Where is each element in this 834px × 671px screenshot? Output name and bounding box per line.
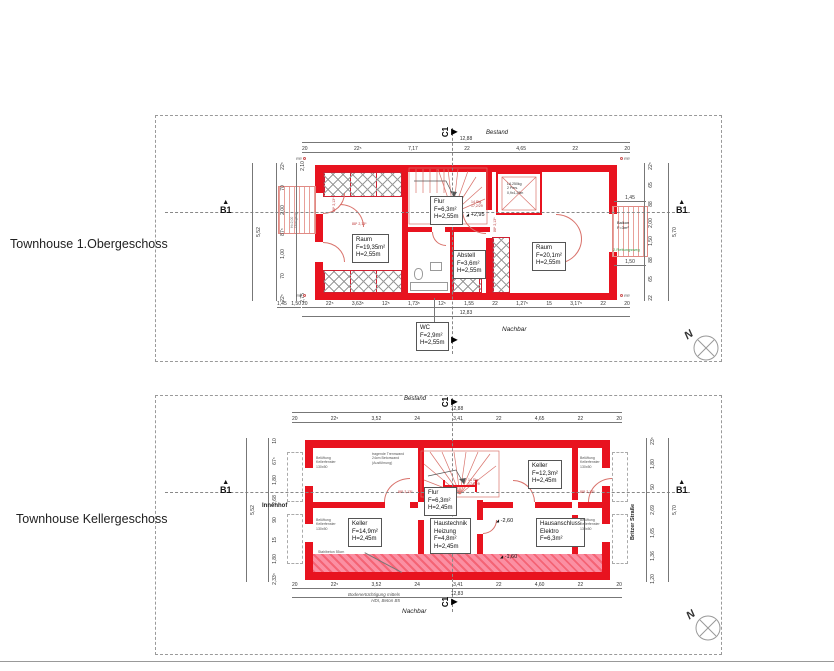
plan1-b1-marker-right: ▲B1 — [676, 199, 688, 215]
plan1-wall-left-seg — [315, 214, 323, 242]
plan2-dim-top-row: 2022⁵3,52243,41224,652220 — [292, 416, 622, 423]
dim-value: 12⁵ — [438, 301, 446, 307]
plan2-wall-mid-right — [535, 502, 572, 508]
room-name: Keller — [352, 521, 378, 529]
plan1-wall-left-seg — [315, 262, 323, 300]
plan1-rr-marker: RR — [620, 293, 630, 298]
level-value: -2,60 — [501, 518, 514, 524]
plan2-light-well — [287, 514, 303, 564]
plan2-room-label-flur: FlurF=6,3m²H=2,45m — [424, 487, 457, 516]
section-label: B1 — [220, 486, 232, 495]
plan2-vent-label: BelüftungKellerfenster130x50 — [316, 518, 336, 531]
room-name: Raum — [536, 245, 562, 253]
plan1-section-line-c1 — [452, 128, 453, 354]
plan2-dim-left-total: 5,52 — [246, 438, 258, 582]
dim-value: 20 — [624, 146, 630, 152]
plan2-bestand-label: Bestand — [404, 396, 426, 402]
room-area: F=6,3m² — [428, 498, 453, 506]
plan2-wall-top — [305, 440, 610, 448]
plan2-wall-mid-right — [578, 502, 602, 508]
plan2-b1-marker-left: ▲B1 — [220, 479, 232, 495]
dim-value: 5,70 — [671, 505, 677, 515]
dim-value: 1,00 — [279, 249, 285, 259]
rr-label: RR — [624, 293, 630, 298]
plan2-light-well — [612, 514, 628, 564]
section-flag-icon: ▶ — [451, 128, 457, 136]
room-area: F=19,35m² — [356, 245, 385, 253]
plan1-room-label-abstell: AbstellF=3,6m²H=2,55m — [453, 250, 486, 279]
note-line: (Ausführung) — [372, 461, 404, 465]
dim-value: 1,20 — [649, 574, 655, 584]
plan2-wall-right-seg — [602, 542, 610, 580]
dim-value: 22⁵ — [279, 294, 285, 302]
dim-value: 3,41 — [453, 582, 463, 588]
rr-label: RR — [624, 156, 630, 161]
plan1-c1-marker-top: C1▶ — [441, 128, 457, 136]
plan1-dim-right-total: 5,70 — [668, 163, 680, 301]
dim-value: 4,65 — [535, 416, 545, 422]
plan2-door-tag: 88⁵ 2,13⁵ — [398, 490, 413, 494]
dim-value: 20 — [292, 582, 298, 588]
room-name: Haustechnik — [434, 521, 467, 529]
dim-value: 12⁵ — [382, 301, 390, 307]
plan2-boden-note: Bodenertüchtigung mittelsHDI, Beton B5 — [300, 592, 400, 603]
note-line: HDI, Beton B5 — [300, 598, 400, 604]
room-area: F=6,3m² — [434, 207, 459, 215]
dim-value: 4,65 — [516, 146, 526, 152]
room-area: F=3m² — [617, 225, 629, 230]
plan2-stahlbeton-note: Stahlbeton 55cm — [318, 550, 344, 554]
dim-value: 4,60 — [535, 582, 545, 588]
room-height: H=2,45m — [352, 536, 378, 544]
plan1-wall-bottom — [315, 293, 617, 300]
room-height: H=2,55m — [356, 252, 385, 260]
vent-line: 130x50 — [580, 465, 600, 469]
plan2-c1-marker-bottom: C1▶ — [441, 598, 457, 606]
plan2-dim-right-col: 23⁵1,80502,691,651,361,20 — [646, 438, 658, 582]
plan2-wall-left-seg — [305, 542, 313, 580]
elevator-text-line: 0,9x1,25m — [507, 191, 523, 195]
rr-dot-icon — [303, 157, 306, 160]
plan1-masonry-hatch-bottom — [323, 270, 402, 293]
plan2-wall-mid-left — [313, 502, 385, 508]
dim-value: 22 — [496, 582, 502, 588]
plan2-vent-label: BelüftungKellerfenster130x50 — [316, 456, 336, 469]
plan1-elevator-shaft: LA 250kg2 Pers.0,9x1,25m — [496, 172, 542, 215]
dim-value: 3,63⁵ — [352, 301, 364, 307]
dim-value: 2,00 — [647, 218, 653, 228]
plan1-dim-left-inner: 2,102,75 — [296, 163, 308, 301]
plan1-room-label-raum-left: RaumF=19,35m²H=2,55m — [352, 234, 389, 263]
room-height: H=2,45m — [428, 505, 453, 513]
dim-value: 22 — [578, 582, 584, 588]
level-flag-icon: ◢ — [466, 212, 469, 217]
plan1-door-tag: 88⁵ 2,13⁵ — [332, 197, 336, 212]
plan1-wc-fixture — [414, 268, 423, 280]
dim-value: 22⁵ — [331, 582, 339, 588]
plan1-door-tag: 88⁵ 2,13⁵ — [352, 222, 367, 226]
plan2-dim-left-col: 1067⁵1,802,6890151,802,33⁵ — [268, 438, 280, 582]
plan2-room-label-keller-left: KellerF=14,9m²H=2,45m — [348, 518, 382, 547]
plan2-trennwand-note: tragende Trennwand24cm Betonwand(Ausführ… — [372, 452, 404, 465]
plan1-rr-marker: RR — [296, 293, 306, 298]
vent-line: 130x50 — [316, 527, 336, 531]
dim-value: 1,73⁵ — [408, 301, 420, 307]
dim-value: 70 — [280, 273, 286, 279]
rr-dot-icon — [620, 157, 623, 160]
plan1-door-tag: 88⁵ 2,13⁵ — [493, 217, 497, 232]
dim-value: 22⁵ — [326, 301, 334, 307]
dim-value: 50 — [650, 484, 656, 490]
room-name: WC — [420, 325, 445, 333]
dim-value: 88 — [648, 201, 654, 207]
dim-value: 65 — [648, 182, 654, 188]
plan2-room-label-hausanschluss: HausanschlussElektroF=6,3m² — [536, 518, 585, 547]
plan2-light-well — [287, 452, 303, 502]
plan1-bestand-label: Bestand — [486, 130, 508, 136]
dim-value: 22 — [600, 301, 606, 307]
dim-value: 20 — [302, 146, 308, 152]
dim-value: 1,80 — [271, 554, 277, 564]
room-height: H=2,45m — [434, 544, 467, 552]
plan2-street-label: Britzer Straße — [630, 504, 636, 540]
level-value: +2,95 — [471, 212, 485, 218]
plan2-north-compass-icon: N — [684, 604, 724, 644]
plan1-dim-right-col: 22⁵65882,001,50886522 — [644, 163, 656, 301]
plan2-light-well — [612, 452, 628, 502]
dim-value: 3,52 — [372, 582, 382, 588]
plan1-dim-left-total: 5,52 — [252, 163, 264, 301]
plan2-b1-marker-right: ▲B1 — [676, 479, 688, 495]
room-name2: Heizung — [434, 529, 467, 537]
plan2-room-label-haustechnik: HaustechnikHeizungF=4,8m²H=2,45m — [430, 518, 471, 554]
dim-value: 2,69 — [649, 505, 655, 515]
plan1-b1-marker-left: ▲B1 — [220, 199, 232, 215]
plan1-room-label-raum-right: RaumF=20,1m²H=2,55m — [532, 242, 566, 271]
rr-label: RR — [296, 156, 302, 161]
plan1-dim-left-col: 22⁵702,0087⁵1,007022⁵ — [276, 163, 288, 301]
dim-value: 22⁵ — [354, 146, 362, 152]
plan2-title: Townhouse Kellergeschoss — [16, 512, 167, 526]
plan1-room-label-wc: WCF=2,9m²H=2,55m — [416, 322, 449, 351]
dim-value: 5,52 — [255, 227, 261, 237]
level-flag-icon: ◢ — [500, 554, 503, 559]
room-name: Abstell — [457, 253, 482, 261]
dim-value: 22⁵ — [647, 162, 653, 170]
plan2-room-label-keller-right: KellerF=12,3m²H=2,45m — [528, 460, 562, 489]
stair-note-line: 17,2/29 — [471, 204, 483, 208]
dim-value: 7,17 — [408, 146, 418, 152]
plan1-wc-leader-line — [434, 298, 435, 324]
plan1-dim-bottom-row: 2022⁵3,63⁵12⁵1,73⁵12⁵1,55221,27⁵153,17⁵2… — [302, 301, 630, 308]
plan2-wall-right-seg — [602, 448, 610, 468]
plan1-walkway-text: H=2,00Übergang — [290, 213, 299, 228]
dim-value: 20 — [292, 416, 298, 422]
plan1-room-label-flur: FlurF=6,3m²H=2,55m — [430, 196, 463, 225]
section-label: C1 — [442, 597, 450, 607]
section-flag-icon: ▶ — [451, 398, 457, 406]
plan1-north-compass-icon: N — [682, 324, 722, 364]
section-label: C1 — [442, 397, 450, 407]
plan2-nachbar-label: Nachbar — [402, 608, 427, 615]
plan1-escape-route-label: 2.Rettungsweg — [613, 247, 640, 252]
plan2-c1-marker-top: C1▶ — [441, 398, 457, 406]
plan1-wall-left-seg — [315, 165, 323, 193]
plan1-section-line-b1 — [165, 212, 690, 213]
plan2-stair-note: 14 Stg.17,2/29 — [468, 478, 480, 487]
dim-value: 70 — [280, 185, 286, 191]
dim-value: 15 — [546, 301, 552, 307]
room-area: F=6,3m² — [540, 536, 581, 544]
dim-value: 15 — [272, 537, 278, 543]
dim-value: 90 — [272, 517, 278, 523]
dim-value: 20 — [616, 582, 622, 588]
level-flag-icon: ◢ — [496, 518, 499, 523]
plan2-vent-label: BelüftungKellerfenster130x50 — [580, 456, 600, 469]
plan2-dim-right-total: 5,70 — [668, 438, 680, 582]
dim-value: 22⁵ — [331, 416, 339, 422]
section-label: B1 — [220, 206, 232, 215]
room-area: F=20,1m² — [536, 253, 562, 261]
dim-value: 22 — [572, 146, 578, 152]
plan2-vent-label: BelüftungKellerfenster130x50 — [580, 518, 600, 531]
dim-value: 10 — [272, 438, 278, 444]
plan2-innenhof-label: Innenhof — [262, 503, 287, 509]
vent-line: 130x50 — [580, 527, 600, 531]
plan2-door-tag: 88⁵ 2,13⁵ — [580, 490, 595, 494]
plan1-dim-top-row: 2022⁵7,17224,652220 — [302, 146, 630, 153]
drawing-sheet: { "titles": { "plan1": "Townhouse 1.Ober… — [0, 0, 834, 671]
plan2-dim-bottom-row: 2022⁵3,52243,41224,602220 — [292, 582, 622, 589]
plan1-stair-note: 14 Stg.17,2/29 — [471, 200, 483, 209]
room-height: H=2,55m — [420, 340, 445, 348]
dim-value: 1,27⁵ — [516, 301, 528, 307]
plan1-dim-bottom-left: 1,451,50 — [277, 301, 301, 308]
plan1-title: Townhouse 1.Obergeschoss — [10, 237, 168, 251]
dim-value: 65 — [648, 276, 654, 282]
dim-value: 67⁵ — [271, 457, 277, 465]
dim-value: 22⁵ — [279, 162, 285, 170]
room-name: Flur — [434, 199, 459, 207]
plan1-sink-fixture — [430, 262, 442, 271]
section-flag-icon: ▶ — [451, 336, 457, 344]
dim-value: 88 — [648, 257, 654, 263]
plan1-dim-bottom-total: 12,83 — [302, 310, 630, 317]
dim-value: 3,41 — [453, 416, 463, 422]
rr-dot-icon — [620, 294, 623, 297]
dim-value: 1,36 — [649, 551, 655, 561]
dim-value: 1,80 — [271, 476, 277, 486]
plan1-elevator-text: LA 250kg2 Pers.0,9x1,25m — [507, 182, 523, 195]
room-name: Keller — [532, 463, 558, 471]
plan1-rr-marker: RR — [620, 156, 630, 161]
room-area: F=3,6m² — [457, 261, 482, 269]
room-height: H=2,45m — [532, 478, 558, 486]
room-area: F=2,9m² — [420, 333, 445, 341]
room-height: H=2,55m — [434, 214, 459, 222]
room-name: Raum — [356, 237, 385, 245]
dim-value: 22 — [464, 146, 470, 152]
dim-value: 3,52 — [372, 416, 382, 422]
dim-value: 1,55 — [464, 301, 474, 307]
stair-note-line: 17,2/29 — [468, 482, 480, 486]
plan2-dim-top-total: 12,88 — [292, 406, 622, 413]
dim-value: 22 — [648, 295, 654, 301]
plan1-chimney-hatch — [492, 237, 510, 293]
plan1-balcony-dim-bottom: 1,50 — [614, 259, 646, 266]
dim-value: 1,80 — [649, 459, 655, 469]
dim-value: 3,17⁵ — [570, 301, 582, 307]
plan2-wall-bottom — [305, 572, 610, 580]
room-height: H=2,55m — [457, 268, 482, 276]
room-name: Flur — [428, 490, 453, 498]
dim-value: 1,65 — [649, 528, 655, 538]
rr-label: RR — [296, 293, 302, 298]
svg-text:N: N — [682, 327, 696, 342]
plan1-wall-flur — [408, 227, 432, 232]
dim-value: 1,50 — [647, 237, 653, 247]
section-label: B1 — [676, 206, 688, 215]
plan2-wall-left-seg — [305, 448, 313, 468]
room-height: H=2,55m — [536, 260, 562, 268]
section-flag-icon: ▶ — [451, 598, 457, 606]
dim-value: 2,00 — [279, 205, 285, 215]
dim-value: 20 — [624, 301, 630, 307]
dim-value: 22 — [578, 416, 584, 422]
level-value: -1,60 — [505, 554, 518, 560]
dim-value: 20 — [616, 416, 622, 422]
walkway-text-line: Übergang — [294, 213, 298, 228]
plan1-nachbar-label: Nachbar — [502, 326, 527, 333]
plan1-dim-top-total: 12,88 — [302, 136, 630, 143]
dim-value: 23⁵ — [649, 437, 655, 445]
plan1-level-marker: ◢ +2,95 — [466, 212, 485, 218]
plan1-balcony-dim-top: 1,45 — [614, 195, 646, 202]
plan2-ground-improvement-zone — [313, 554, 602, 572]
svg-text:N: N — [684, 607, 698, 622]
dim-value: 2,33⁵ — [272, 573, 278, 585]
plan2-wall-mid-right — [483, 502, 513, 508]
room-area: F=4,8m² — [434, 536, 467, 544]
vent-line: 130x50 — [316, 465, 336, 469]
dim-value: 1,45 — [277, 301, 287, 307]
plan1-balcony-label: BalkonF=3m² — [617, 220, 629, 230]
sheet-bottom-edge — [0, 661, 834, 662]
room-name: Hausanschluss — [540, 521, 581, 529]
dim-value: 22 — [492, 301, 498, 307]
plan2-level-marker-2: ◢ -1,60 — [500, 554, 517, 560]
room-area: F=12,3m² — [532, 471, 558, 479]
plan2-wall-mid-left — [410, 502, 418, 508]
dim-value: 5,70 — [671, 227, 677, 237]
room-name2: Elektro — [540, 529, 581, 537]
plan2-level-marker-1: ◢ -2,60 — [496, 518, 513, 524]
room-area: F=14,9m² — [352, 529, 378, 537]
dim-value: 24 — [414, 416, 420, 422]
section-label: C1 — [442, 127, 450, 137]
dim-value: 87⁵ — [279, 228, 285, 236]
plan1-shower-fixture — [410, 282, 448, 291]
plan1-rr-marker: RR — [296, 156, 306, 161]
dim-value: 5,52 — [249, 505, 255, 515]
section-label: B1 — [676, 486, 688, 495]
rr-dot-icon — [303, 294, 306, 297]
dim-value: 24 — [414, 582, 420, 588]
dim-value: 2,10 — [299, 161, 305, 171]
dim-value: 22 — [496, 416, 502, 422]
